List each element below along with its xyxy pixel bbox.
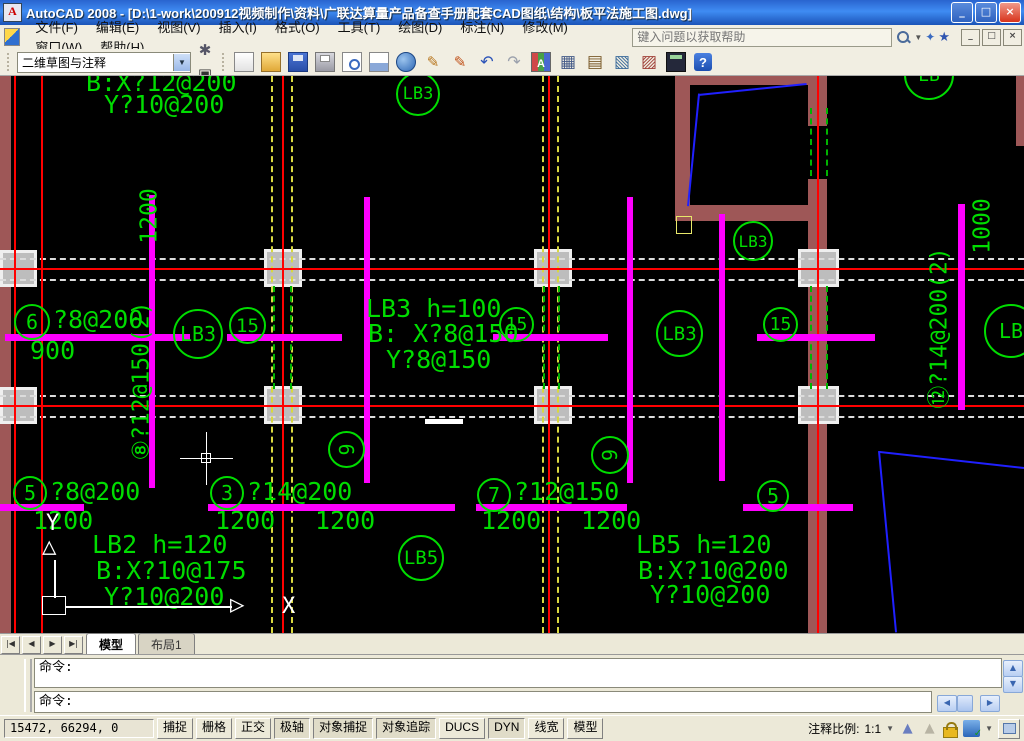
publish-icon [369, 52, 389, 72]
tab-nav-3[interactable]: ▶| [64, 636, 83, 654]
command-history[interactable]: 命令: [34, 658, 1002, 688]
pencil-icon [424, 53, 442, 71]
cad-vertical-text: 1200 [139, 188, 162, 243]
autocad-app-icon: A [3, 3, 22, 22]
wall [1016, 76, 1024, 146]
cad-circle-label: 9 [591, 436, 629, 474]
layout-tabs: 模型布局1 [84, 633, 195, 655]
bar [719, 214, 725, 481]
menu-item-7[interactable]: 标注(N) [451, 17, 513, 38]
cad-vertical-text: ⑧?12@150(2) [131, 301, 154, 460]
cad-text: 1200 [481, 508, 541, 534]
undo-button[interactable] [475, 50, 499, 74]
grid-line-v [826, 108, 828, 176]
open-button[interactable] [259, 50, 283, 74]
scroll-down-icon[interactable]: ▼ [1003, 676, 1023, 693]
cad-circle-label: 15 [763, 307, 798, 342]
coordinate-readout[interactable]: 15472, 66294, 0 [4, 719, 154, 738]
gear-button[interactable] [193, 38, 217, 62]
bar [627, 197, 633, 483]
open-icon [261, 52, 281, 72]
cad-circle-label: 15 [499, 307, 534, 342]
menu-item-0[interactable]: 文件(F) [26, 17, 87, 38]
cad-text: ▷ [230, 592, 244, 617]
scroll-right-icon[interactable]: ▶ [980, 695, 1000, 712]
plot-button[interactable] [313, 50, 337, 74]
outline-box [676, 216, 692, 234]
stair-line [880, 451, 1024, 469]
cad-text: 1200 [581, 508, 641, 534]
help-button[interactable] [691, 50, 715, 74]
document-icon [4, 28, 20, 46]
layout-tabs-row: |◀◀▶▶| 模型布局1 [0, 633, 1024, 655]
matchprop-button[interactable] [529, 50, 553, 74]
cad-circle-label: LB [904, 75, 954, 100]
cad-text: X [282, 595, 295, 618]
help-search-area: ▼ ✦ ★ _ □ × [632, 28, 1022, 47]
toolbar-grip[interactable] [222, 53, 227, 71]
cad-text: Y?10@200 [104, 92, 224, 118]
calc-icon [666, 52, 686, 72]
web-button[interactable] [394, 50, 418, 74]
wall [0, 76, 11, 633]
cad-vertical-text: 1000 [972, 198, 995, 253]
cad-circle-label: 15 [229, 307, 266, 344]
grid-line-v [14, 76, 16, 633]
cad-text: Y?10@200 [650, 582, 770, 608]
tab-nav-0[interactable]: |◀ [1, 636, 20, 654]
redo-button[interactable] [502, 50, 526, 74]
cad-text: 900 [30, 338, 75, 364]
annotation-scale-label: 注释比例: [808, 720, 859, 737]
workspace-dropdown[interactable]: 二维草图与注释 ▼ [17, 52, 191, 73]
blockedit-icon [640, 53, 658, 71]
cad-circle-label: LB5 [398, 535, 444, 581]
save-button[interactable] [286, 50, 310, 74]
cad-text: LB2 h=120 [92, 532, 227, 558]
restore-button[interactable]: □ [975, 2, 997, 23]
search-icon[interactable] [895, 29, 911, 45]
toolbar: 二维草图与注释 ▼ [0, 49, 1024, 76]
calc-button[interactable] [664, 50, 688, 74]
cad-circle-label: LB3 [396, 75, 440, 116]
toggle-DYN[interactable]: DYN [488, 718, 525, 739]
bar [958, 204, 965, 410]
toggle-极轴[interactable]: 极轴 [274, 718, 310, 739]
mdi-minimize-button[interactable]: _ [961, 29, 980, 46]
cad-text: ?12@150 [514, 479, 619, 505]
cad-circle-label: LB3 [733, 221, 773, 261]
gear-icon [196, 41, 214, 59]
menu-item-3[interactable]: 插入(I) [210, 17, 266, 38]
menu-item-1[interactable]: 编辑(E) [87, 17, 148, 38]
cad-circle-label: LB [984, 304, 1024, 358]
toggle-捕捉[interactable]: 捕捉 [157, 718, 193, 739]
new-button[interactable] [232, 50, 256, 74]
cad-circle-label: 5 [757, 480, 789, 512]
cad-text: B: X?8@150 [368, 321, 519, 347]
scale-dropdown-icon[interactable]: ▼ [886, 724, 894, 733]
bar [425, 419, 463, 424]
tray-dropdown-icon[interactable]: ▼ [985, 724, 993, 733]
scrollbar-thumb[interactable] [957, 695, 973, 712]
chevron-down-icon[interactable]: ▼ [173, 54, 190, 71]
command-input[interactable]: 命令: [34, 691, 932, 713]
preview-icon [342, 52, 362, 72]
toggle-正交[interactable]: 正交 [235, 718, 271, 739]
menu-item-8[interactable]: 修改(M) [513, 17, 577, 38]
toggle-模型[interactable]: 模型 [567, 718, 603, 739]
toggle-栅格[interactable]: 栅格 [196, 718, 232, 739]
menu-item-6[interactable]: 绘图(D) [389, 17, 451, 38]
tab-nav-2[interactable]: ▶ [43, 636, 62, 654]
menu-item-5[interactable]: 工具(T) [329, 17, 390, 38]
matchprop-icon [531, 52, 551, 72]
pencil2-icon [451, 53, 469, 71]
undo-icon [478, 53, 496, 71]
status-tray-icon[interactable] [963, 720, 980, 737]
cad-text: LB5 h=120 [636, 532, 771, 558]
plot-icon [315, 52, 335, 72]
cad-text: ?14@200 [247, 479, 352, 505]
search-dropdown-icon[interactable]: ▼ [914, 33, 922, 42]
autocad-window: { "title_bar": { "title": "AutoCAD 2008 … [0, 0, 1024, 740]
sheetset-button[interactable] [583, 50, 607, 74]
grid-line-v [810, 108, 812, 176]
pencil-button[interactable] [421, 50, 445, 74]
blockedit-button[interactable] [637, 50, 661, 74]
layers-icon [559, 53, 577, 71]
annotation-visibility-icon[interactable]: ▲ [899, 720, 916, 737]
cad-circle-label: 6 [14, 304, 50, 340]
outline-box [201, 453, 211, 463]
cad-text: Y?8@150 [386, 347, 491, 373]
toolbar-grip[interactable] [7, 53, 12, 71]
save-icon [288, 52, 308, 72]
markup-button[interactable] [610, 50, 634, 74]
clean-screen-button[interactable] [998, 719, 1020, 739]
cad-text: 1200 [33, 508, 93, 534]
status-toggles: 捕捉栅格正交极轴对象捕捉对象追踪DUCSDYN线宽模型 [157, 718, 603, 739]
annotation-autoscale-icon[interactable]: ▲ [921, 720, 938, 737]
minimize-button[interactable]: _ [951, 2, 973, 23]
workspace-label: 二维草图与注释 [22, 54, 106, 71]
grid-line-v [548, 76, 550, 633]
menu-item-2[interactable]: 视图(V) [148, 17, 209, 38]
communication-center-icon[interactable]: ✦ [925, 30, 935, 44]
cad-text: 1200 [315, 508, 375, 534]
wall [675, 205, 827, 221]
drawing-canvas[interactable]: B:X?12@200Y?10@200LB3 h=100B: X?8@150Y?8… [0, 75, 1024, 634]
cad-circle-label: 9 [328, 431, 365, 468]
markup-icon [613, 53, 631, 71]
close-button[interactable]: × [999, 2, 1021, 23]
command-window: 命令: 命令: ▲ ▼ ◀ ▶ [0, 654, 1024, 716]
standard-toolbar-icons [232, 50, 715, 74]
layers-button[interactable] [556, 50, 580, 74]
toggle-DUCS[interactable]: DUCS [439, 718, 485, 739]
cad-text: B:X?10@175 [96, 558, 247, 584]
status-bar: 15472, 66294, 0 捕捉栅格正交极轴对象捕捉对象追踪DUCSDYN线… [0, 715, 1024, 741]
tab-布局1[interactable]: 布局1 [138, 633, 195, 655]
stair-line [878, 451, 897, 632]
cad-circle-label: 3 [210, 476, 244, 510]
tab-模型[interactable]: 模型 [86, 633, 136, 655]
menu-item-4[interactable]: 格式(O) [266, 17, 329, 38]
tab-nav-buttons: |◀◀▶▶| [0, 636, 84, 655]
redo-icon [505, 53, 523, 71]
mdi-restore-button[interactable]: □ [982, 29, 1001, 46]
mdi-close-button[interactable]: × [1003, 29, 1022, 46]
cad-text: △ [42, 534, 56, 559]
cad-circle-label: LB3 [656, 310, 703, 357]
pencil2-button[interactable] [448, 50, 472, 74]
favorites-star-icon[interactable]: ★ [938, 29, 950, 45]
scroll-left-icon[interactable]: ◀ [937, 695, 957, 712]
toggle-对象捕捉[interactable]: 对象捕捉 [313, 718, 373, 739]
toggle-对象追踪[interactable]: 对象追踪 [376, 718, 436, 739]
help-search-input[interactable] [632, 28, 892, 47]
grid-line-v [817, 76, 819, 633]
publish-button[interactable] [367, 50, 391, 74]
grid-line-v [282, 76, 284, 633]
toggle-线宽[interactable]: 线宽 [528, 718, 564, 739]
command-window-grip[interactable] [24, 659, 32, 712]
outline-box [42, 596, 66, 615]
web-icon [396, 52, 416, 72]
new-icon [234, 52, 254, 72]
help-icon [694, 53, 712, 71]
lock-icon[interactable] [943, 727, 958, 738]
cad-vertical-text: ⑫?14@200(2) [929, 247, 952, 408]
grid-line-h [66, 606, 232, 608]
cad-text: ?8@200 [50, 479, 140, 505]
tab-nav-1[interactable]: ◀ [22, 636, 41, 654]
annotation-scale-value[interactable]: 1:1 [864, 722, 881, 736]
menu-bar: 文件(F)编辑(E)视图(V)插入(I)格式(O)工具(T)绘图(D)标注(N)… [0, 25, 1024, 50]
sheetset-icon [586, 53, 604, 71]
scroll-up-icon[interactable]: ▲ [1003, 660, 1023, 677]
cad-circle-label: LB3 [173, 309, 223, 359]
cad-circle-label: 5 [13, 476, 47, 510]
preview-button[interactable] [340, 50, 364, 74]
grid-line-v [54, 560, 56, 598]
